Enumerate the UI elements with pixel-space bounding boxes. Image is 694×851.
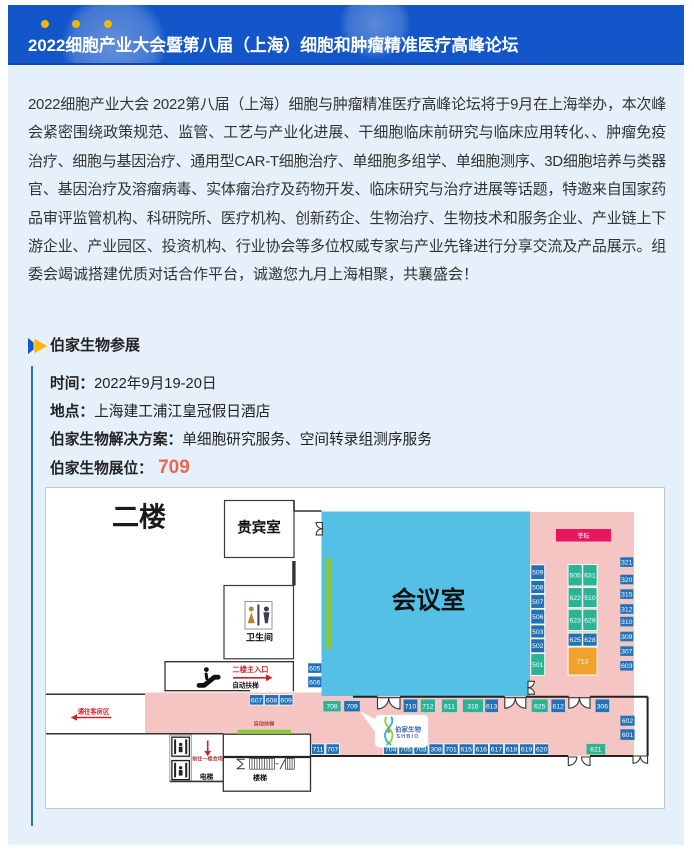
svg-text:704: 704	[385, 747, 397, 754]
svg-text:321: 321	[621, 560, 633, 567]
svg-text:701: 701	[445, 747, 457, 754]
svg-text:628: 628	[584, 637, 596, 644]
svg-text:320: 320	[621, 577, 633, 584]
svg-text:709: 709	[346, 704, 358, 711]
svg-text:621: 621	[590, 747, 602, 754]
svg-text:自动扶梯: 自动扶梯	[232, 681, 259, 690]
svg-text:605: 605	[309, 666, 321, 673]
svg-text:509: 509	[532, 570, 544, 577]
svg-text:自动扶梯: 自动扶梯	[254, 719, 276, 727]
svg-text:501: 501	[532, 662, 544, 669]
svg-text:602: 602	[622, 718, 634, 725]
svg-text:503: 503	[532, 629, 544, 636]
svg-text:会议室: 会议室	[392, 586, 466, 615]
svg-text:617: 617	[491, 747, 503, 754]
svg-text:622: 622	[569, 595, 581, 602]
svg-text:710: 710	[405, 703, 417, 710]
svg-text:通往客房区: 通往客房区	[78, 706, 110, 715]
svg-text:601: 601	[622, 732, 634, 739]
svg-text:306: 306	[597, 703, 609, 710]
svg-text:二楼主入口: 二楼主入口	[233, 665, 269, 674]
svg-text:713: 713	[577, 659, 589, 666]
svg-text:619: 619	[521, 747, 533, 754]
svg-text:625: 625	[569, 637, 581, 644]
svg-text:615: 615	[461, 747, 473, 754]
svg-text:707: 707	[327, 747, 339, 754]
svg-text:607: 607	[251, 697, 263, 704]
svg-text:711: 711	[313, 747, 324, 754]
svg-text:611: 611	[444, 703, 455, 710]
svg-text:712: 712	[422, 703, 434, 710]
svg-text:309: 309	[621, 634, 633, 641]
svg-text:609: 609	[280, 697, 292, 704]
svg-text:楼梯: 楼梯	[253, 773, 267, 782]
svg-text:623: 623	[569, 617, 581, 624]
svg-text:莘耘: 莘耘	[577, 532, 589, 540]
svg-text:伯家生物: 伯家生物	[395, 724, 422, 733]
svg-text:613: 613	[486, 703, 498, 710]
svg-text:卫生间: 卫生间	[246, 632, 273, 643]
svg-text:308: 308	[430, 747, 442, 754]
svg-text:505: 505	[569, 573, 581, 580]
svg-text:312: 312	[621, 606, 633, 613]
svg-text:SHBIO: SHBIO	[396, 734, 419, 740]
svg-text:507: 507	[532, 599, 544, 606]
svg-text:510: 510	[584, 595, 596, 602]
svg-text:310: 310	[621, 619, 633, 626]
svg-text:708: 708	[326, 704, 338, 711]
svg-text:705: 705	[400, 747, 412, 754]
svg-text:606: 606	[309, 679, 321, 686]
svg-text:603: 603	[621, 663, 633, 670]
svg-text:316: 316	[467, 703, 479, 710]
svg-text:电梯: 电梯	[200, 772, 214, 781]
svg-text:二楼: 二楼	[112, 503, 166, 533]
svg-text:703: 703	[415, 747, 427, 754]
svg-text:508: 508	[532, 584, 544, 591]
svg-text:620: 620	[536, 747, 548, 754]
svg-text:629: 629	[584, 617, 596, 624]
svg-text:502: 502	[532, 643, 544, 650]
svg-text:631: 631	[584, 573, 596, 580]
svg-text:616: 616	[476, 747, 488, 754]
svg-text:608: 608	[266, 697, 278, 704]
svg-text:506: 506	[532, 614, 544, 621]
svg-text:612: 612	[553, 703, 565, 710]
svg-text:307: 307	[621, 649, 633, 656]
svg-text:315: 315	[621, 592, 633, 599]
svg-text:贵宾室: 贵宾室	[237, 519, 281, 537]
svg-text:625: 625	[534, 703, 546, 710]
svg-text:618: 618	[506, 747, 518, 754]
svg-text:前往一楼会场: 前往一楼会场	[192, 756, 223, 763]
